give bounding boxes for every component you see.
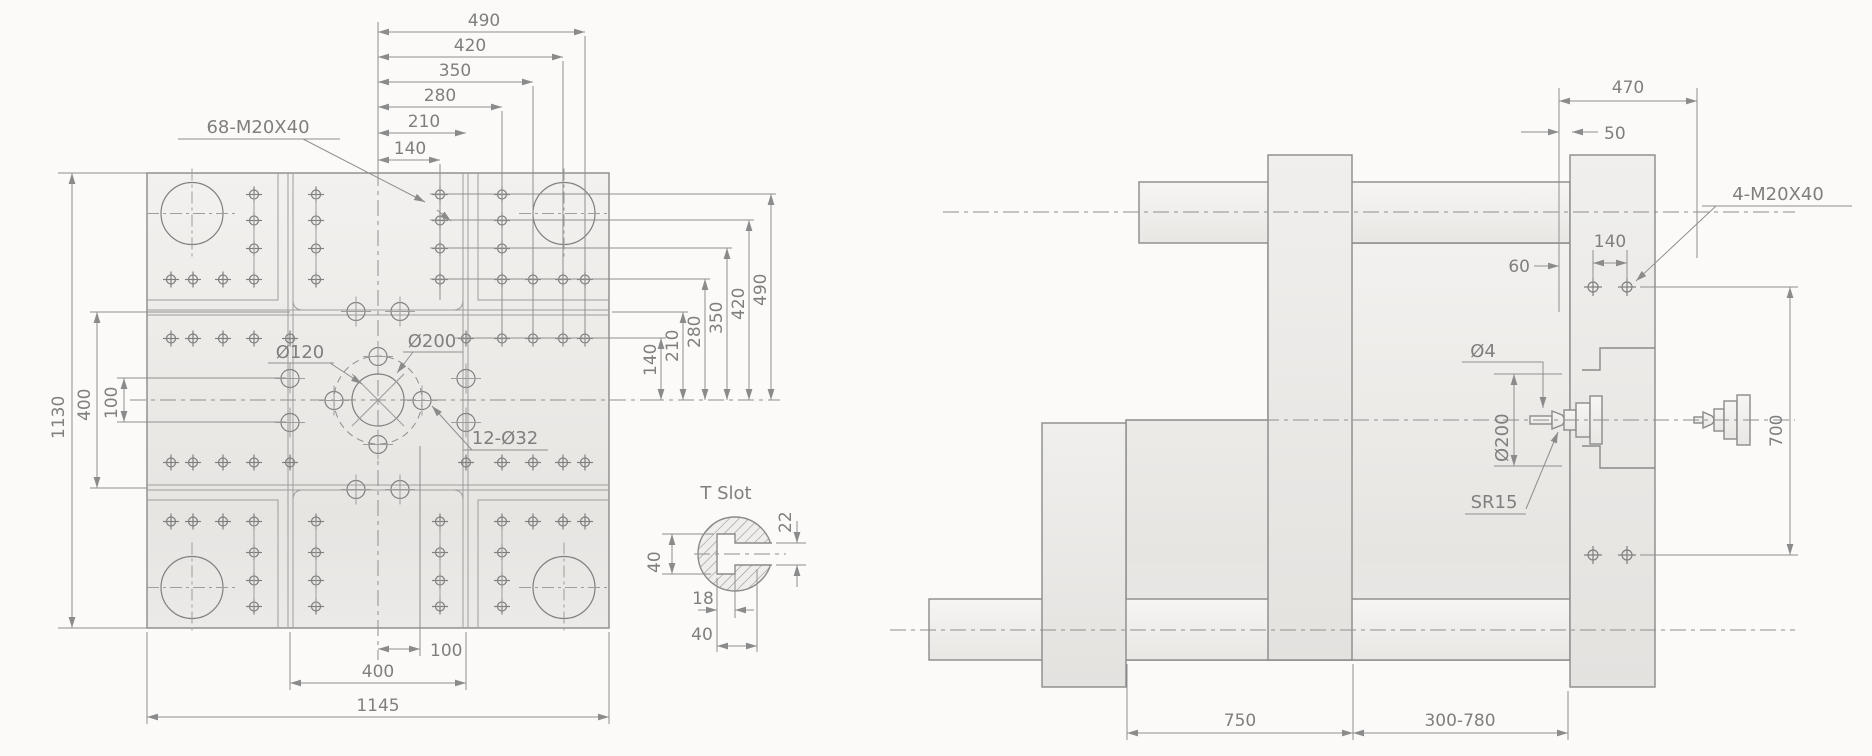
dim-top-210: 210 — [408, 112, 440, 132]
sphere-label: SR15 — [1471, 492, 1518, 513]
dim-left-100: 100 — [102, 387, 122, 419]
dim-bottom-100: 100 — [430, 641, 462, 661]
dim-top-140: 140 — [394, 139, 426, 159]
dim-top-350: 350 — [439, 61, 471, 81]
side-dim-stroke: 300-780 — [1424, 711, 1495, 731]
dim-left-400: 400 — [75, 389, 95, 421]
bolt-circle-label: Ø200 — [408, 331, 457, 352]
hole-note-label: 68-M20X40 — [206, 117, 309, 138]
dim-right-420: 420 — [729, 288, 749, 320]
tslot-dim-40-left: 40 — [645, 551, 665, 573]
orifice-label: Ø4 — [1470, 341, 1496, 362]
dim-top-420: 420 — [454, 36, 486, 56]
platen-drawing: 490 420 350 280 210 140 140 210 280 350 — [0, 0, 1872, 756]
support-foot — [1042, 423, 1126, 687]
side-hole-note: 4-M20X40 — [1732, 184, 1824, 205]
small-holes-label: 12-Ø32 — [472, 428, 538, 449]
dim-bottom-400: 400 — [362, 662, 394, 682]
dim-right-350: 350 — [707, 302, 727, 334]
dim-left-1130: 1130 — [49, 396, 69, 439]
dim-top-490: 490 — [468, 11, 500, 31]
dim-right-140: 140 — [641, 344, 661, 376]
dim-bottom-1145: 1145 — [356, 696, 399, 716]
dim-right-210: 210 — [663, 330, 683, 362]
cad-drawing-canvas: 490 420 350 280 210 140 140 210 280 350 — [0, 0, 1872, 756]
tslot-dim-40-bottom: 40 — [691, 625, 713, 645]
tslot-title: T Slot — [699, 483, 751, 504]
front-view: 490 420 350 280 210 140 140 210 280 350 — [49, 11, 780, 724]
tslot-detail: T Slot 40 22 18 40 — [645, 483, 806, 652]
dim-top-280: 280 — [424, 86, 456, 106]
dim-right-280: 280 — [685, 316, 705, 348]
moving-platen — [1268, 155, 1352, 660]
side-dim-50: 50 — [1604, 124, 1626, 144]
side-dim-470: 470 — [1612, 78, 1644, 98]
tslot-dim-22: 22 — [776, 511, 796, 533]
side-dim-700: 700 — [1767, 415, 1787, 447]
side-dim-140: 140 — [1594, 232, 1626, 252]
side-view: 470 50 140 60 4-M20X40 Ø4 Ø200 — [890, 78, 1852, 740]
tslot-dim-18: 18 — [692, 589, 714, 609]
side-dim-750: 750 — [1224, 711, 1256, 731]
side-dim-60: 60 — [1508, 257, 1530, 277]
ring-label: Ø200 — [1492, 413, 1513, 462]
center-hole-label: Ø120 — [276, 342, 325, 363]
dim-right-490: 490 — [751, 274, 771, 306]
